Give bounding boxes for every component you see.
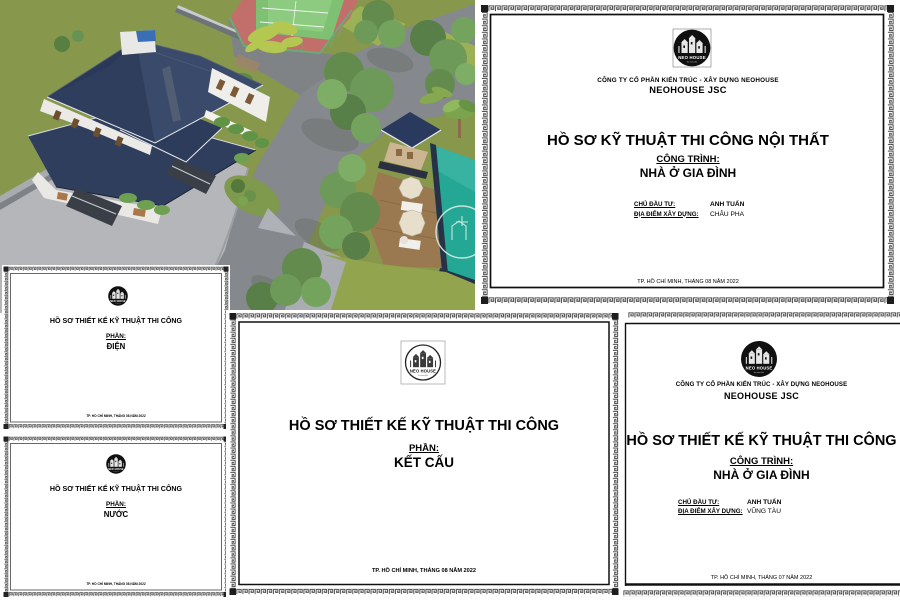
svg-text:NEO HOUSE: NEO HOUSE (678, 55, 706, 60)
svg-text:NEO HOUSE: NEO HOUSE (746, 365, 773, 370)
svg-text:NEO HOUSE: NEO HOUSE (108, 468, 123, 471)
svg-text:for new life: for new life (754, 371, 765, 374)
svg-text:NEO HOUSE: NEO HOUSE (110, 300, 125, 303)
svg-text:NEO HOUSE: NEO HOUSE (410, 369, 436, 374)
svg-text:for new life: for new life (687, 60, 698, 63)
svg-text:for new life: for new life (418, 374, 428, 377)
